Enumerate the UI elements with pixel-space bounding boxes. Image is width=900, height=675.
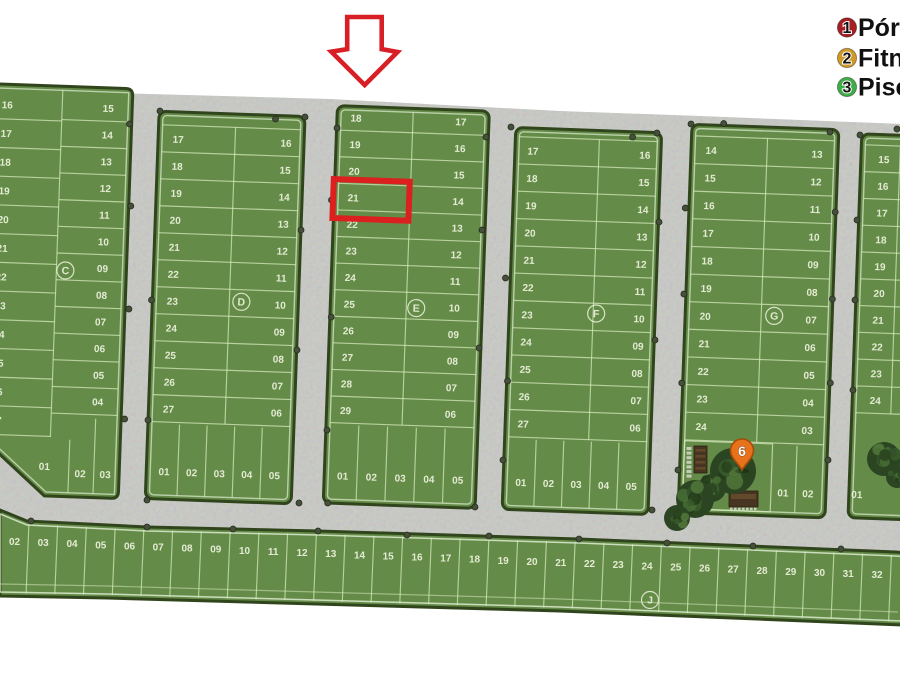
svg-text:Fitness: Fitness bbox=[858, 45, 900, 73]
svg-text:20: 20 bbox=[699, 312, 711, 323]
svg-text:19: 19 bbox=[498, 556, 510, 567]
svg-text:11: 11 bbox=[276, 273, 287, 284]
svg-text:13: 13 bbox=[636, 232, 648, 243]
svg-text:19: 19 bbox=[349, 140, 361, 151]
svg-text:06: 06 bbox=[124, 541, 136, 552]
svg-text:17: 17 bbox=[172, 135, 184, 146]
svg-text:23: 23 bbox=[696, 394, 708, 405]
svg-text:17: 17 bbox=[702, 229, 714, 240]
svg-text:18: 18 bbox=[469, 555, 481, 566]
svg-text:07: 07 bbox=[272, 381, 284, 392]
svg-text:21: 21 bbox=[347, 193, 359, 204]
svg-text:04: 04 bbox=[423, 474, 435, 485]
svg-text:02: 02 bbox=[74, 469, 86, 480]
svg-text:13: 13 bbox=[811, 150, 823, 161]
svg-text:09: 09 bbox=[448, 330, 460, 341]
svg-text:21: 21 bbox=[698, 339, 710, 350]
svg-text:27: 27 bbox=[163, 404, 175, 415]
svg-text:19: 19 bbox=[700, 284, 712, 295]
svg-text:05: 05 bbox=[625, 482, 637, 493]
svg-text:06: 06 bbox=[804, 343, 816, 354]
svg-text:19: 19 bbox=[525, 201, 537, 212]
svg-text:02: 02 bbox=[802, 489, 814, 500]
svg-text:13: 13 bbox=[451, 224, 463, 235]
svg-text:26: 26 bbox=[164, 378, 176, 389]
svg-text:15: 15 bbox=[383, 551, 395, 562]
svg-text:24: 24 bbox=[695, 422, 707, 433]
svg-text:18: 18 bbox=[701, 256, 713, 267]
svg-text:Piscina: Piscina bbox=[858, 74, 900, 102]
svg-text:12: 12 bbox=[276, 246, 288, 257]
svg-text:25: 25 bbox=[670, 563, 682, 574]
svg-text:02: 02 bbox=[9, 537, 21, 548]
svg-text:15: 15 bbox=[638, 178, 650, 189]
svg-text:D: D bbox=[237, 296, 245, 308]
svg-text:16: 16 bbox=[703, 201, 715, 212]
svg-text:09: 09 bbox=[97, 264, 109, 275]
svg-text:17: 17 bbox=[455, 117, 467, 128]
svg-text:23: 23 bbox=[345, 246, 357, 257]
svg-text:08: 08 bbox=[631, 369, 643, 380]
svg-text:18: 18 bbox=[350, 113, 362, 124]
svg-text:28: 28 bbox=[341, 379, 353, 390]
svg-text:17: 17 bbox=[527, 146, 539, 157]
svg-text:01: 01 bbox=[777, 488, 789, 499]
svg-text:02: 02 bbox=[543, 479, 555, 490]
svg-text:03: 03 bbox=[570, 480, 582, 491]
svg-text:12: 12 bbox=[100, 184, 112, 195]
svg-text:E: E bbox=[413, 303, 420, 315]
svg-text:32: 32 bbox=[871, 570, 883, 581]
svg-text:3: 3 bbox=[843, 80, 852, 97]
svg-text:05: 05 bbox=[269, 471, 281, 482]
svg-text:26: 26 bbox=[343, 326, 355, 337]
svg-text:07: 07 bbox=[630, 396, 642, 407]
svg-text:G: G bbox=[770, 310, 779, 322]
svg-text:08: 08 bbox=[96, 291, 108, 302]
svg-text:07: 07 bbox=[153, 543, 165, 554]
svg-text:03: 03 bbox=[99, 470, 111, 481]
svg-text:18: 18 bbox=[526, 174, 538, 185]
svg-text:05: 05 bbox=[803, 371, 815, 382]
svg-text:09: 09 bbox=[274, 327, 286, 338]
svg-text:05: 05 bbox=[452, 475, 464, 486]
svg-text:04: 04 bbox=[241, 470, 253, 481]
svg-text:Pórtico: Pórtico bbox=[858, 14, 900, 42]
svg-text:18: 18 bbox=[171, 162, 183, 173]
svg-text:10: 10 bbox=[98, 237, 110, 248]
svg-text:20: 20 bbox=[873, 289, 885, 300]
svg-text:12: 12 bbox=[296, 548, 308, 559]
svg-text:24: 24 bbox=[166, 324, 178, 335]
svg-text:08: 08 bbox=[181, 544, 193, 555]
svg-text:16: 16 bbox=[411, 553, 423, 564]
svg-text:27: 27 bbox=[342, 353, 354, 364]
svg-text:26: 26 bbox=[699, 564, 711, 575]
svg-text:14: 14 bbox=[452, 197, 464, 208]
svg-text:22: 22 bbox=[0, 272, 7, 283]
svg-text:06: 06 bbox=[629, 423, 641, 434]
svg-text:29: 29 bbox=[340, 406, 352, 417]
svg-text:16: 16 bbox=[1, 100, 13, 111]
svg-text:16: 16 bbox=[639, 150, 651, 161]
svg-text:21: 21 bbox=[523, 256, 535, 267]
svg-text:08: 08 bbox=[806, 288, 818, 299]
svg-text:24: 24 bbox=[0, 330, 5, 341]
svg-text:25: 25 bbox=[519, 365, 531, 376]
svg-text:23: 23 bbox=[167, 297, 179, 308]
svg-text:11: 11 bbox=[450, 277, 461, 288]
svg-text:C: C bbox=[61, 265, 69, 277]
svg-text:23: 23 bbox=[521, 310, 533, 321]
svg-text:03: 03 bbox=[394, 473, 406, 484]
svg-text:30: 30 bbox=[814, 568, 826, 579]
svg-text:17: 17 bbox=[0, 129, 12, 140]
svg-text:01: 01 bbox=[851, 490, 863, 501]
svg-text:13: 13 bbox=[325, 549, 337, 560]
svg-text:23: 23 bbox=[0, 301, 6, 312]
svg-text:13: 13 bbox=[100, 157, 112, 168]
svg-text:24: 24 bbox=[641, 561, 653, 572]
svg-text:09: 09 bbox=[807, 260, 819, 271]
svg-text:04: 04 bbox=[66, 539, 78, 550]
svg-text:14: 14 bbox=[278, 192, 290, 203]
svg-text:25: 25 bbox=[344, 299, 356, 310]
svg-text:21: 21 bbox=[0, 244, 8, 255]
svg-text:02: 02 bbox=[366, 472, 378, 483]
svg-text:11: 11 bbox=[268, 547, 279, 558]
svg-text:06: 06 bbox=[271, 408, 283, 419]
svg-text:13: 13 bbox=[277, 219, 289, 230]
svg-text:27: 27 bbox=[728, 565, 740, 576]
svg-text:19: 19 bbox=[170, 189, 182, 200]
svg-text:20: 20 bbox=[348, 167, 360, 178]
svg-text:22: 22 bbox=[522, 283, 534, 294]
svg-text:29: 29 bbox=[785, 567, 797, 578]
svg-text:01: 01 bbox=[158, 467, 170, 478]
svg-text:03: 03 bbox=[213, 469, 225, 480]
svg-text:05: 05 bbox=[95, 540, 107, 551]
svg-text:19: 19 bbox=[0, 186, 10, 197]
svg-text:10: 10 bbox=[448, 303, 460, 314]
svg-text:17: 17 bbox=[440, 554, 452, 565]
svg-text:05: 05 bbox=[93, 371, 105, 382]
svg-text:23: 23 bbox=[870, 369, 882, 380]
svg-text:02: 02 bbox=[186, 468, 198, 479]
svg-text:12: 12 bbox=[450, 250, 462, 261]
svg-text:14: 14 bbox=[637, 205, 649, 216]
svg-text:10: 10 bbox=[633, 314, 645, 325]
svg-text:25: 25 bbox=[165, 351, 177, 362]
svg-text:20: 20 bbox=[524, 228, 536, 239]
svg-text:03: 03 bbox=[38, 538, 50, 549]
svg-text:21: 21 bbox=[555, 558, 567, 569]
svg-text:01: 01 bbox=[337, 471, 349, 482]
svg-text:07: 07 bbox=[95, 317, 107, 328]
svg-text:06: 06 bbox=[94, 344, 106, 355]
svg-text:04: 04 bbox=[598, 481, 610, 492]
svg-text:11: 11 bbox=[810, 205, 821, 216]
svg-text:22: 22 bbox=[168, 270, 180, 281]
svg-text:10: 10 bbox=[239, 546, 251, 557]
svg-text:18: 18 bbox=[0, 157, 11, 168]
svg-text:24: 24 bbox=[345, 273, 357, 284]
svg-text:01: 01 bbox=[39, 462, 51, 473]
svg-text:04: 04 bbox=[92, 397, 104, 408]
svg-text:10: 10 bbox=[808, 232, 820, 243]
svg-text:20: 20 bbox=[169, 216, 181, 227]
svg-text:12: 12 bbox=[635, 260, 647, 271]
svg-text:28: 28 bbox=[756, 566, 768, 577]
svg-text:15: 15 bbox=[704, 173, 716, 184]
svg-text:24: 24 bbox=[869, 396, 881, 407]
svg-text:16: 16 bbox=[454, 144, 466, 155]
svg-text:12: 12 bbox=[810, 177, 822, 188]
svg-text:17: 17 bbox=[876, 208, 888, 219]
svg-text:26: 26 bbox=[518, 392, 530, 403]
svg-text:15: 15 bbox=[878, 155, 890, 166]
svg-text:20: 20 bbox=[526, 557, 538, 568]
svg-text:20: 20 bbox=[0, 215, 9, 226]
svg-text:15: 15 bbox=[102, 104, 114, 115]
svg-text:11: 11 bbox=[99, 210, 110, 221]
svg-text:10: 10 bbox=[274, 300, 286, 311]
svg-text:21: 21 bbox=[872, 316, 884, 327]
svg-text:07: 07 bbox=[446, 383, 458, 394]
svg-text:08: 08 bbox=[273, 354, 285, 365]
svg-text:14: 14 bbox=[354, 550, 366, 561]
svg-text:21: 21 bbox=[168, 243, 180, 254]
svg-text:11: 11 bbox=[634, 287, 645, 298]
svg-text:23: 23 bbox=[613, 560, 625, 571]
svg-text:16: 16 bbox=[877, 182, 889, 193]
svg-text:J: J bbox=[647, 595, 653, 607]
svg-text:01: 01 bbox=[515, 478, 527, 489]
svg-text:2: 2 bbox=[843, 51, 852, 68]
svg-text:06: 06 bbox=[445, 410, 457, 421]
svg-text:19: 19 bbox=[874, 262, 886, 273]
svg-text:22: 22 bbox=[584, 559, 596, 570]
svg-text:07: 07 bbox=[805, 315, 817, 326]
svg-text:15: 15 bbox=[453, 170, 465, 181]
svg-text:09: 09 bbox=[210, 545, 222, 556]
svg-text:14: 14 bbox=[101, 130, 113, 141]
svg-text:04: 04 bbox=[802, 398, 814, 409]
svg-text:6: 6 bbox=[738, 443, 746, 459]
svg-text:14: 14 bbox=[705, 146, 717, 157]
svg-text:27: 27 bbox=[517, 419, 529, 430]
svg-text:15: 15 bbox=[279, 166, 291, 177]
svg-text:16: 16 bbox=[280, 139, 292, 150]
svg-text:31: 31 bbox=[843, 569, 855, 580]
svg-text:22: 22 bbox=[871, 342, 883, 353]
svg-text:22: 22 bbox=[697, 367, 709, 378]
svg-text:09: 09 bbox=[632, 341, 644, 352]
svg-text:1: 1 bbox=[843, 20, 852, 37]
svg-text:03: 03 bbox=[801, 426, 813, 437]
svg-text:08: 08 bbox=[447, 356, 459, 367]
svg-text:18: 18 bbox=[875, 235, 887, 246]
svg-text:F: F bbox=[593, 308, 600, 320]
svg-text:24: 24 bbox=[520, 337, 532, 348]
